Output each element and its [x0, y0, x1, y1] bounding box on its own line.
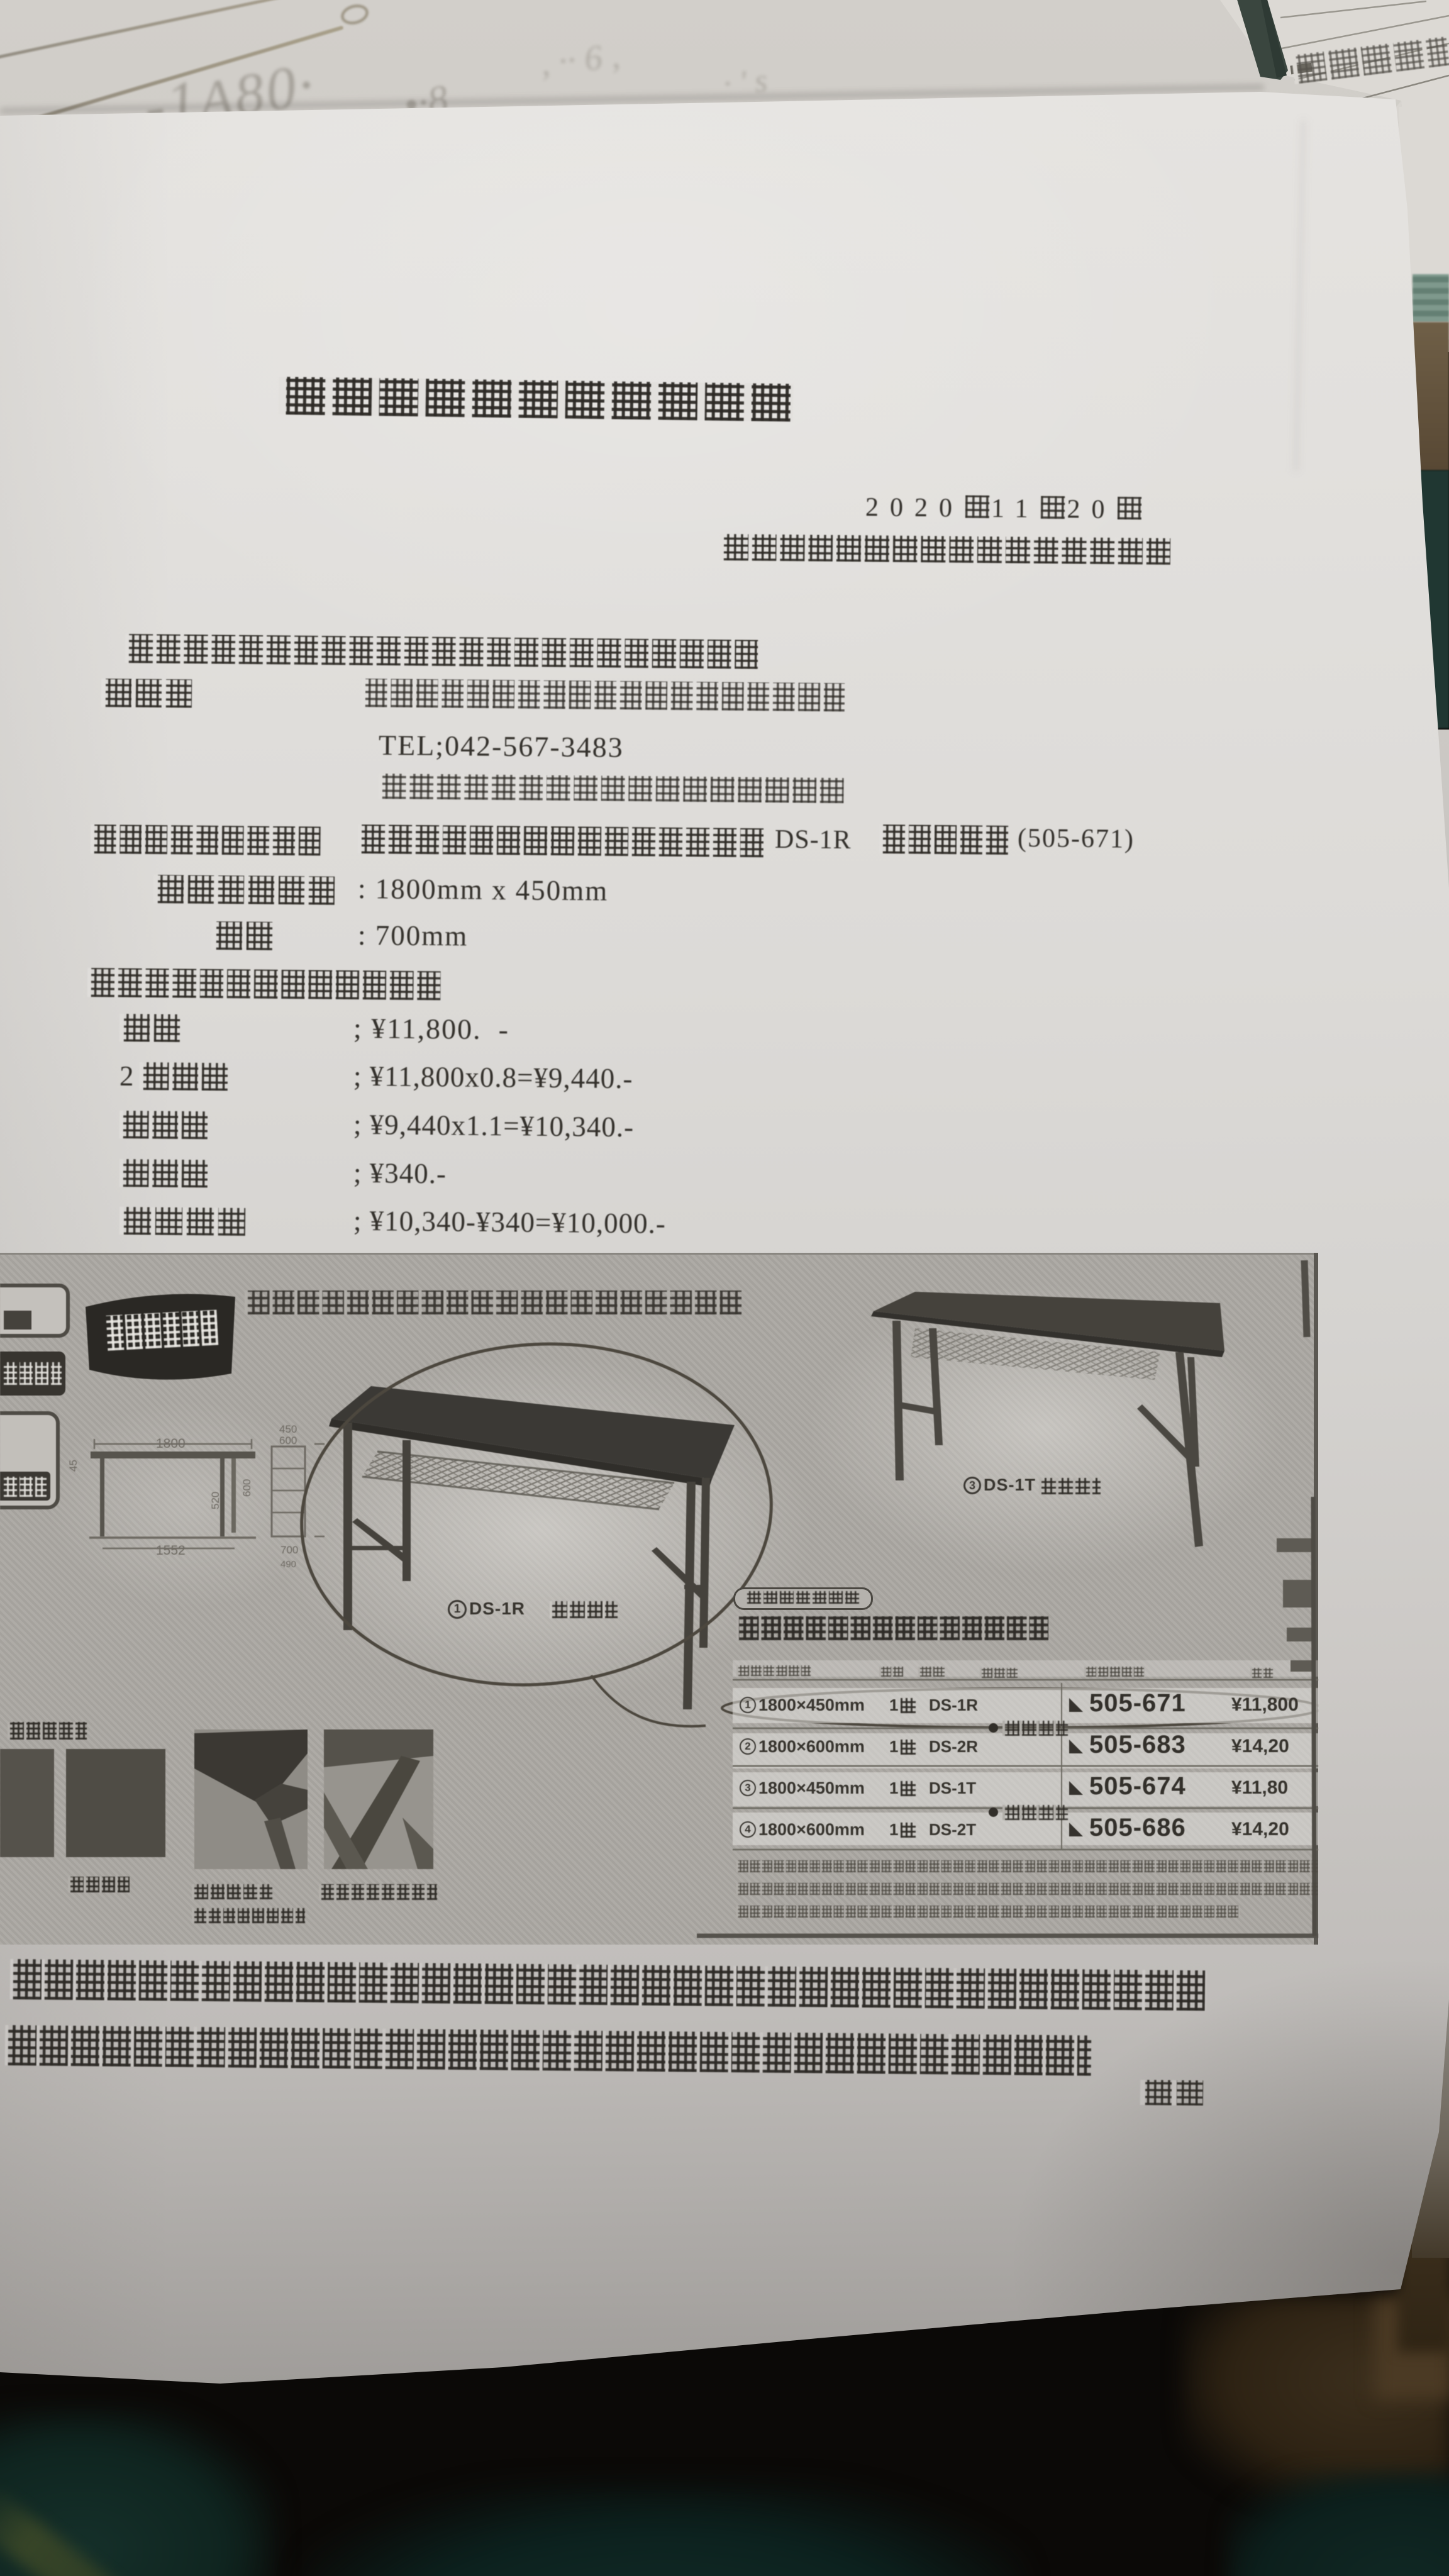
svg-text:520: 520: [209, 1492, 221, 1509]
svg-text:1552: 1552: [156, 1543, 186, 1558]
svg-text:490: 490: [280, 1559, 296, 1570]
svg-text:600: 600: [279, 1435, 297, 1446]
svg-text:450: 450: [279, 1423, 297, 1435]
svg-text:600: 600: [241, 1479, 253, 1497]
svg-text:1800: 1800: [156, 1436, 186, 1451]
svg-text:700: 700: [280, 1544, 298, 1556]
svg-text:45: 45: [67, 1460, 79, 1472]
